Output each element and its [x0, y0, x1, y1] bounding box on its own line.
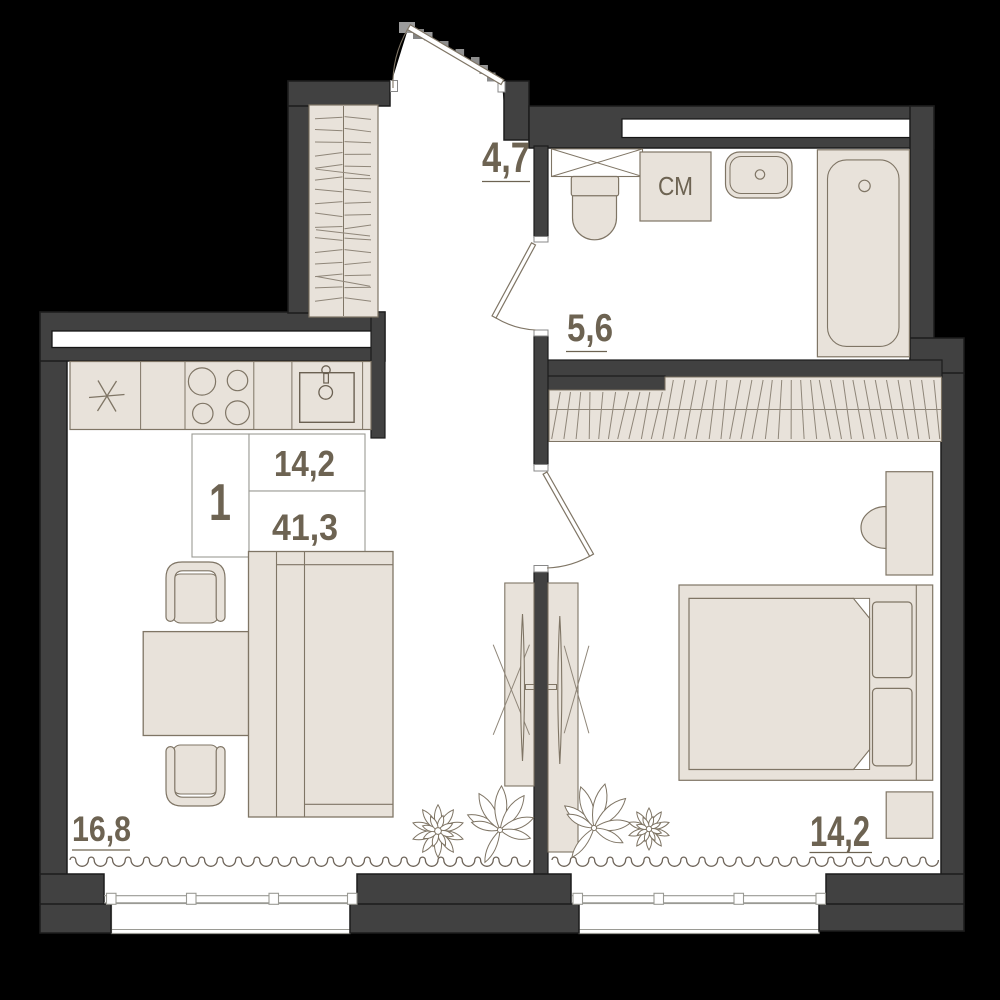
svg-text:1: 1 — [209, 474, 231, 532]
svg-text:14,2: 14,2 — [274, 443, 335, 484]
svg-text:14,2: 14,2 — [810, 808, 870, 856]
svg-text:4,7: 4,7 — [482, 134, 530, 182]
svg-text:41,3: 41,3 — [272, 507, 338, 548]
svg-text:16,8: 16,8 — [72, 810, 131, 849]
svg-text:СМ: СМ — [658, 171, 693, 201]
svg-text:5,6: 5,6 — [567, 307, 613, 350]
